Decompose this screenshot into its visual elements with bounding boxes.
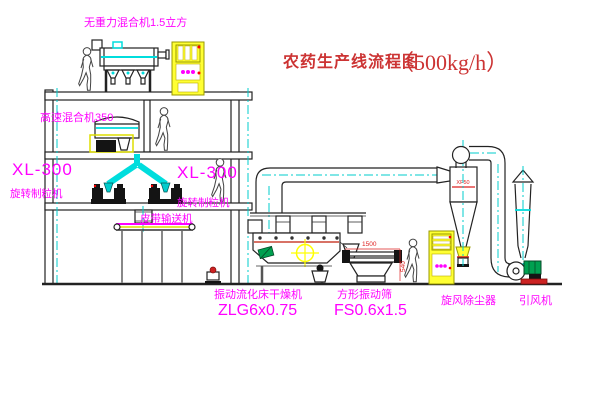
floor-deck-top: [45, 92, 252, 100]
gravity-free-mixer: [92, 40, 169, 92]
induced-draft-fan-machine: [507, 261, 547, 284]
screen-width-dim: 1500: [362, 241, 377, 248]
label-dryer-name: 振动流化床干燥机: [214, 287, 302, 301]
fan-base: [521, 279, 547, 284]
label-high-speed-mixer: 高速混合机350: [40, 110, 113, 124]
louver: [433, 236, 450, 239]
fluid-bed-dryer-machine: [248, 168, 452, 283]
person-figure: [405, 239, 419, 282]
mixer-discharge-funnels: [107, 70, 149, 84]
granulator-inlet: [161, 183, 170, 192]
vibrating-screen-machine: 1500 540: [340, 241, 407, 282]
pump-motor: [210, 267, 216, 273]
exhaust-duct-inner: [282, 182, 437, 213]
mid-column: [144, 100, 150, 152]
label-granulator-right-model: XL-300: [177, 163, 238, 182]
control-cabinet-lower: [429, 231, 454, 284]
control-cabinet-upper: [172, 42, 204, 95]
control-knobs-icon: [181, 70, 195, 74]
label-granulator-right-name: 旋转制粒机: [177, 196, 230, 209]
cad-flow-diagram: 1500 540 XF50: [0, 0, 600, 403]
title-capacity: （500kg/h）: [392, 50, 508, 75]
label-dryer-model: ZLG6x0.75: [218, 302, 297, 319]
hsmixer-cone: [118, 138, 130, 150]
title-block: 农药生产线流程图 （500kg/h）: [282, 50, 508, 75]
cyclone-to-fan-duct: [469, 147, 511, 278]
louver: [192, 46, 197, 60]
screen-deck: [345, 252, 397, 256]
mixer-inlet: [113, 42, 122, 48]
cyclone-outlet-elbow: [453, 147, 470, 164]
fan-housing: [507, 262, 525, 280]
indicator-light-icon: [94, 185, 96, 187]
small-pump: [205, 267, 221, 284]
mixer-nozzle: [158, 52, 166, 58]
label-granulator-left-name: 旋转制粒机: [10, 187, 63, 200]
granulator-left-machine: [91, 183, 126, 204]
label-fan: 引风机: [519, 293, 552, 307]
label-gravity-mixer: 无重力混合机1.5立方: [84, 15, 187, 29]
louver: [433, 241, 450, 244]
right-wall-column: [231, 92, 239, 284]
dryer-inlet: [248, 220, 262, 233]
floor-deck-middle: [45, 152, 252, 159]
louver: [185, 46, 190, 60]
dryer-pedestal: [312, 265, 328, 283]
louver: [178, 46, 183, 60]
indicator-light-icon: [151, 185, 153, 187]
label-screen-name: 方形振动筛: [337, 287, 392, 301]
cyclone-inlet-taper: [437, 167, 450, 183]
hsmixer-motor: [96, 140, 116, 152]
hood-ports: [276, 216, 362, 233]
diagram-svg: 1500 540 XF50: [0, 0, 600, 403]
indicator-light-icon: [449, 236, 452, 239]
screen-deck: [345, 258, 397, 262]
indicator-light-icon: [449, 267, 452, 270]
indicator-light-icon: [198, 46, 201, 49]
person-figure: [156, 108, 170, 151]
cabinet-door: [178, 83, 198, 92]
control-knobs-icon: [435, 264, 447, 268]
person-figure: [79, 48, 93, 91]
indicator-light-icon: [198, 72, 201, 75]
label-screen-model: FS0.6x1.5: [334, 302, 407, 319]
screen-base: [350, 263, 392, 276]
belt-roller: [114, 224, 120, 230]
belt-conveyor-machine: [114, 224, 195, 283]
label-granulator-left-model: XL-300: [12, 160, 73, 179]
louver: [433, 246, 450, 249]
fan-motor: [524, 261, 541, 274]
label-belt-conveyor: 皮带输送机: [140, 212, 193, 225]
granulator-inlet: [104, 183, 113, 192]
label-cyclone: 旋风除尘器: [441, 293, 496, 307]
